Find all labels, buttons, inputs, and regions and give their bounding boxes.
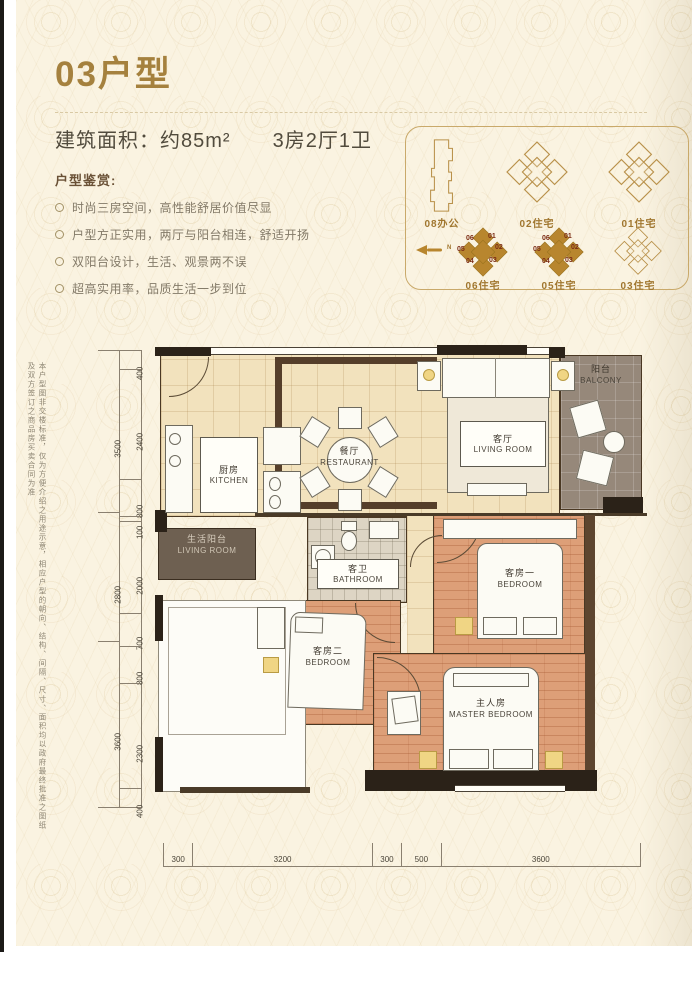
room-name-en: BATHROOM <box>318 575 398 585</box>
unit-number: 06 <box>542 235 550 242</box>
dim-segment: 3600 <box>441 843 640 867</box>
nightstand <box>545 751 563 769</box>
dim-segment: 500 <box>401 843 440 867</box>
building-02-outline <box>506 141 568 203</box>
kitchen-label: 厨房 KITCHEN <box>200 437 258 513</box>
bullet-icon <box>55 230 64 239</box>
nightstand <box>455 617 473 635</box>
room-name-en: MASTER BEDROOM <box>443 710 539 720</box>
room-name-en: KITCHEN <box>201 476 257 486</box>
unit-number: 01 <box>564 233 572 240</box>
feature-text: 超高实用率，品质生活一步到位 <box>72 280 247 297</box>
window <box>211 347 437 355</box>
desk-chair <box>391 695 418 724</box>
bullet-icon <box>55 203 64 212</box>
room-name-cn: 餐厅 <box>307 445 392 458</box>
wall <box>155 595 163 641</box>
lamp-icon <box>423 369 435 381</box>
room-name-en: BEDROOM <box>477 580 563 590</box>
dim-segment: 800 <box>120 646 141 683</box>
bedroom2-label: 客房二 BEDROOM <box>287 645 369 668</box>
sink-basin-icon <box>269 477 281 491</box>
wall <box>155 510 167 532</box>
dim-segment: 3500 <box>98 350 119 512</box>
pillow <box>295 617 324 634</box>
pillow <box>523 617 557 635</box>
unit-number: 03 <box>565 257 573 264</box>
floor-plan: 厨房 KITCHEN 餐厅 RESTAURANT 客厅 LIVING ROOM … <box>155 345 645 803</box>
room-name-cn: 生活阳台 <box>158 533 256 546</box>
dim-label: 300 <box>172 855 185 864</box>
building-03-label: 03住宅 <box>607 277 669 292</box>
building-06-label: 06住宅 <box>452 277 514 292</box>
dim-label: 2400 <box>135 433 144 451</box>
room-name-cn: 阳台 <box>560 363 642 376</box>
dim-label: 300 <box>380 855 393 864</box>
feature-text: 双阳台设计，生活、观景两不误 <box>72 253 247 270</box>
unit-number: 01 <box>488 233 496 240</box>
dim-label: 3200 <box>274 855 292 864</box>
toilet-tank <box>341 521 357 531</box>
dim-segment: 300 <box>372 843 401 867</box>
hob-burner-icon <box>169 455 181 467</box>
bedroom2-desk <box>257 607 285 649</box>
service-balcony-label: 生活阳台 LIVING ROOM <box>158 533 256 556</box>
nightstand <box>263 657 279 673</box>
window <box>527 347 549 355</box>
room-name-en: BALCONY <box>560 376 642 386</box>
wall <box>155 737 163 792</box>
balcony-label: 阳台 BALCONY <box>560 363 642 386</box>
sofa <box>442 358 550 398</box>
dim-segment: 2800 <box>98 512 119 641</box>
sofa-cushion-divider <box>495 358 496 398</box>
room-name-cn: 厨房 <box>201 464 257 477</box>
building-03-outline <box>612 227 664 275</box>
dimension-chain-bottom: 300 3200 300 500 3600 <box>163 843 641 867</box>
toilet-icon <box>341 531 357 551</box>
unit-number: 06 <box>466 235 474 242</box>
room-name-cn: 客厅 <box>461 433 545 446</box>
site-plan-box: 08办公 02住宅 01住宅 N 06 01 05 02 04 03 06住宅 … <box>405 126 689 290</box>
dim-segment: 3600 <box>98 641 119 807</box>
building-08-outline <box>424 137 460 213</box>
dim-segment: 2000 <box>120 521 141 613</box>
bathroom-sink <box>369 521 399 539</box>
dim-label: 2300 <box>135 745 144 763</box>
dining-chair <box>338 489 362 511</box>
bullet-icon <box>55 257 64 266</box>
area-label: 建筑面积：约85m² <box>55 130 231 152</box>
feature-item: 户型方正实用，两厅与阳台相连，舒适开扬 <box>55 221 385 248</box>
dim-segment: 800 <box>120 479 141 516</box>
dim-segment: 300 <box>163 843 192 867</box>
room-name-en: RESTAURANT <box>307 458 392 468</box>
living-label: 客厅 LIVING ROOM <box>460 421 546 467</box>
dim-label: 500 <box>415 855 428 864</box>
unit-number: 04 <box>466 258 474 265</box>
room-name-en: BEDROOM <box>287 658 369 668</box>
balcony-table <box>603 431 625 453</box>
wall <box>437 345 527 355</box>
dimension-chain-left-inner: 400 2400 800 100 2000 700 800 2300 400 <box>120 350 142 808</box>
dim-segment: 700 <box>120 613 141 646</box>
wall <box>180 787 310 793</box>
feature-item: 双阳台设计，生活、观景两不误 <box>55 248 385 275</box>
building-05: 06 01 05 02 04 03 <box>530 227 588 277</box>
unit-number: 03 <box>489 257 497 264</box>
unit-number: 05 <box>457 246 465 253</box>
pillow <box>483 617 517 635</box>
brochure-page: { "page": { "title": "03户型", "area_label… <box>0 0 700 990</box>
feature-text: 时尚三房空间，高性能舒居价值尽显 <box>72 199 272 216</box>
room-name-en: LIVING ROOM <box>158 546 256 556</box>
unit-number: 04 <box>542 258 550 265</box>
wall <box>155 347 211 356</box>
disclaimer-text: 本户型图非交楼标准，仅为方便介绍之用途示意，相应户型的朝向、结构、间隔、尺寸、面… <box>26 362 48 834</box>
dining-label: 餐厅 RESTAURANT <box>307 445 392 468</box>
feature-item: 时尚三房空间，高性能舒居价值尽显 <box>55 194 385 221</box>
room-name-cn: 主人房 <box>443 697 539 710</box>
pillow <box>493 749 533 769</box>
compass-n-label: N <box>447 245 451 251</box>
dim-segment: 2300 <box>120 683 141 788</box>
dimension-chain-left-outer: 3500 2800 3600 <box>98 350 120 808</box>
building-01-outline <box>608 141 670 203</box>
dim-segment: 2400 <box>120 369 141 479</box>
master-wardrobe-wall <box>585 515 595 791</box>
unit-number: 02 <box>495 244 503 251</box>
building-06: 06 01 05 02 04 03 <box>454 227 512 277</box>
north-arrow-icon: N <box>416 243 456 257</box>
nightstand <box>419 751 437 769</box>
features-list: 时尚三房空间，高性能舒居价值尽显 户型方正实用，两厅与阳台相连，舒适开扬 双阳台… <box>55 194 385 302</box>
sink-basin-icon <box>269 495 281 509</box>
unit-number: 02 <box>571 244 579 251</box>
unit-number: 05 <box>533 246 541 253</box>
area-line: 建筑面积：约85m²3房2厅1卫 <box>55 124 372 153</box>
tv-cabinet <box>467 483 527 496</box>
features-heading: 户型鉴赏: <box>55 170 116 189</box>
dim-label: 2000 <box>135 577 144 595</box>
dim-segment: 3200 <box>192 843 371 867</box>
bedroom1-label: 客房一 BEDROOM <box>477 567 563 590</box>
title-divider <box>55 112 647 113</box>
wall <box>603 497 643 514</box>
feature-text: 户型方正实用，两厅与阳台相连，舒适开扬 <box>72 226 310 243</box>
hob-burner-icon <box>169 433 181 445</box>
master-label: 主人房 MASTER BEDROOM <box>443 697 539 720</box>
scan-edge <box>0 0 4 952</box>
page-title: 03户型 <box>55 46 172 97</box>
kitchen-sink-unit <box>263 471 301 513</box>
dining-chair <box>338 407 362 429</box>
bathroom-label: 客卫 BATHROOM <box>317 559 399 589</box>
dim-label: 3600 <box>532 855 550 864</box>
room-name-cn: 客房二 <box>287 645 369 658</box>
room-name-cn: 客房一 <box>477 567 563 580</box>
kitchen-cabinet <box>263 427 301 465</box>
headboard-shelf <box>453 673 529 687</box>
dim-segment: 400 <box>120 350 141 369</box>
wall <box>549 347 565 358</box>
dim-segment: 400 <box>120 788 141 807</box>
pillow <box>449 749 489 769</box>
room-name-cn: 客卫 <box>318 563 398 576</box>
dim-label: 400 <box>135 805 144 818</box>
layout-label: 3房2厅1卫 <box>273 130 372 152</box>
room-name-en: LIVING ROOM <box>461 445 545 455</box>
bullet-icon <box>55 284 64 293</box>
bedroom1-wardrobe <box>443 519 577 539</box>
window <box>455 785 565 792</box>
feature-item: 超高实用率，品质生活一步到位 <box>55 275 385 302</box>
building-05-label: 05住宅 <box>528 277 590 292</box>
